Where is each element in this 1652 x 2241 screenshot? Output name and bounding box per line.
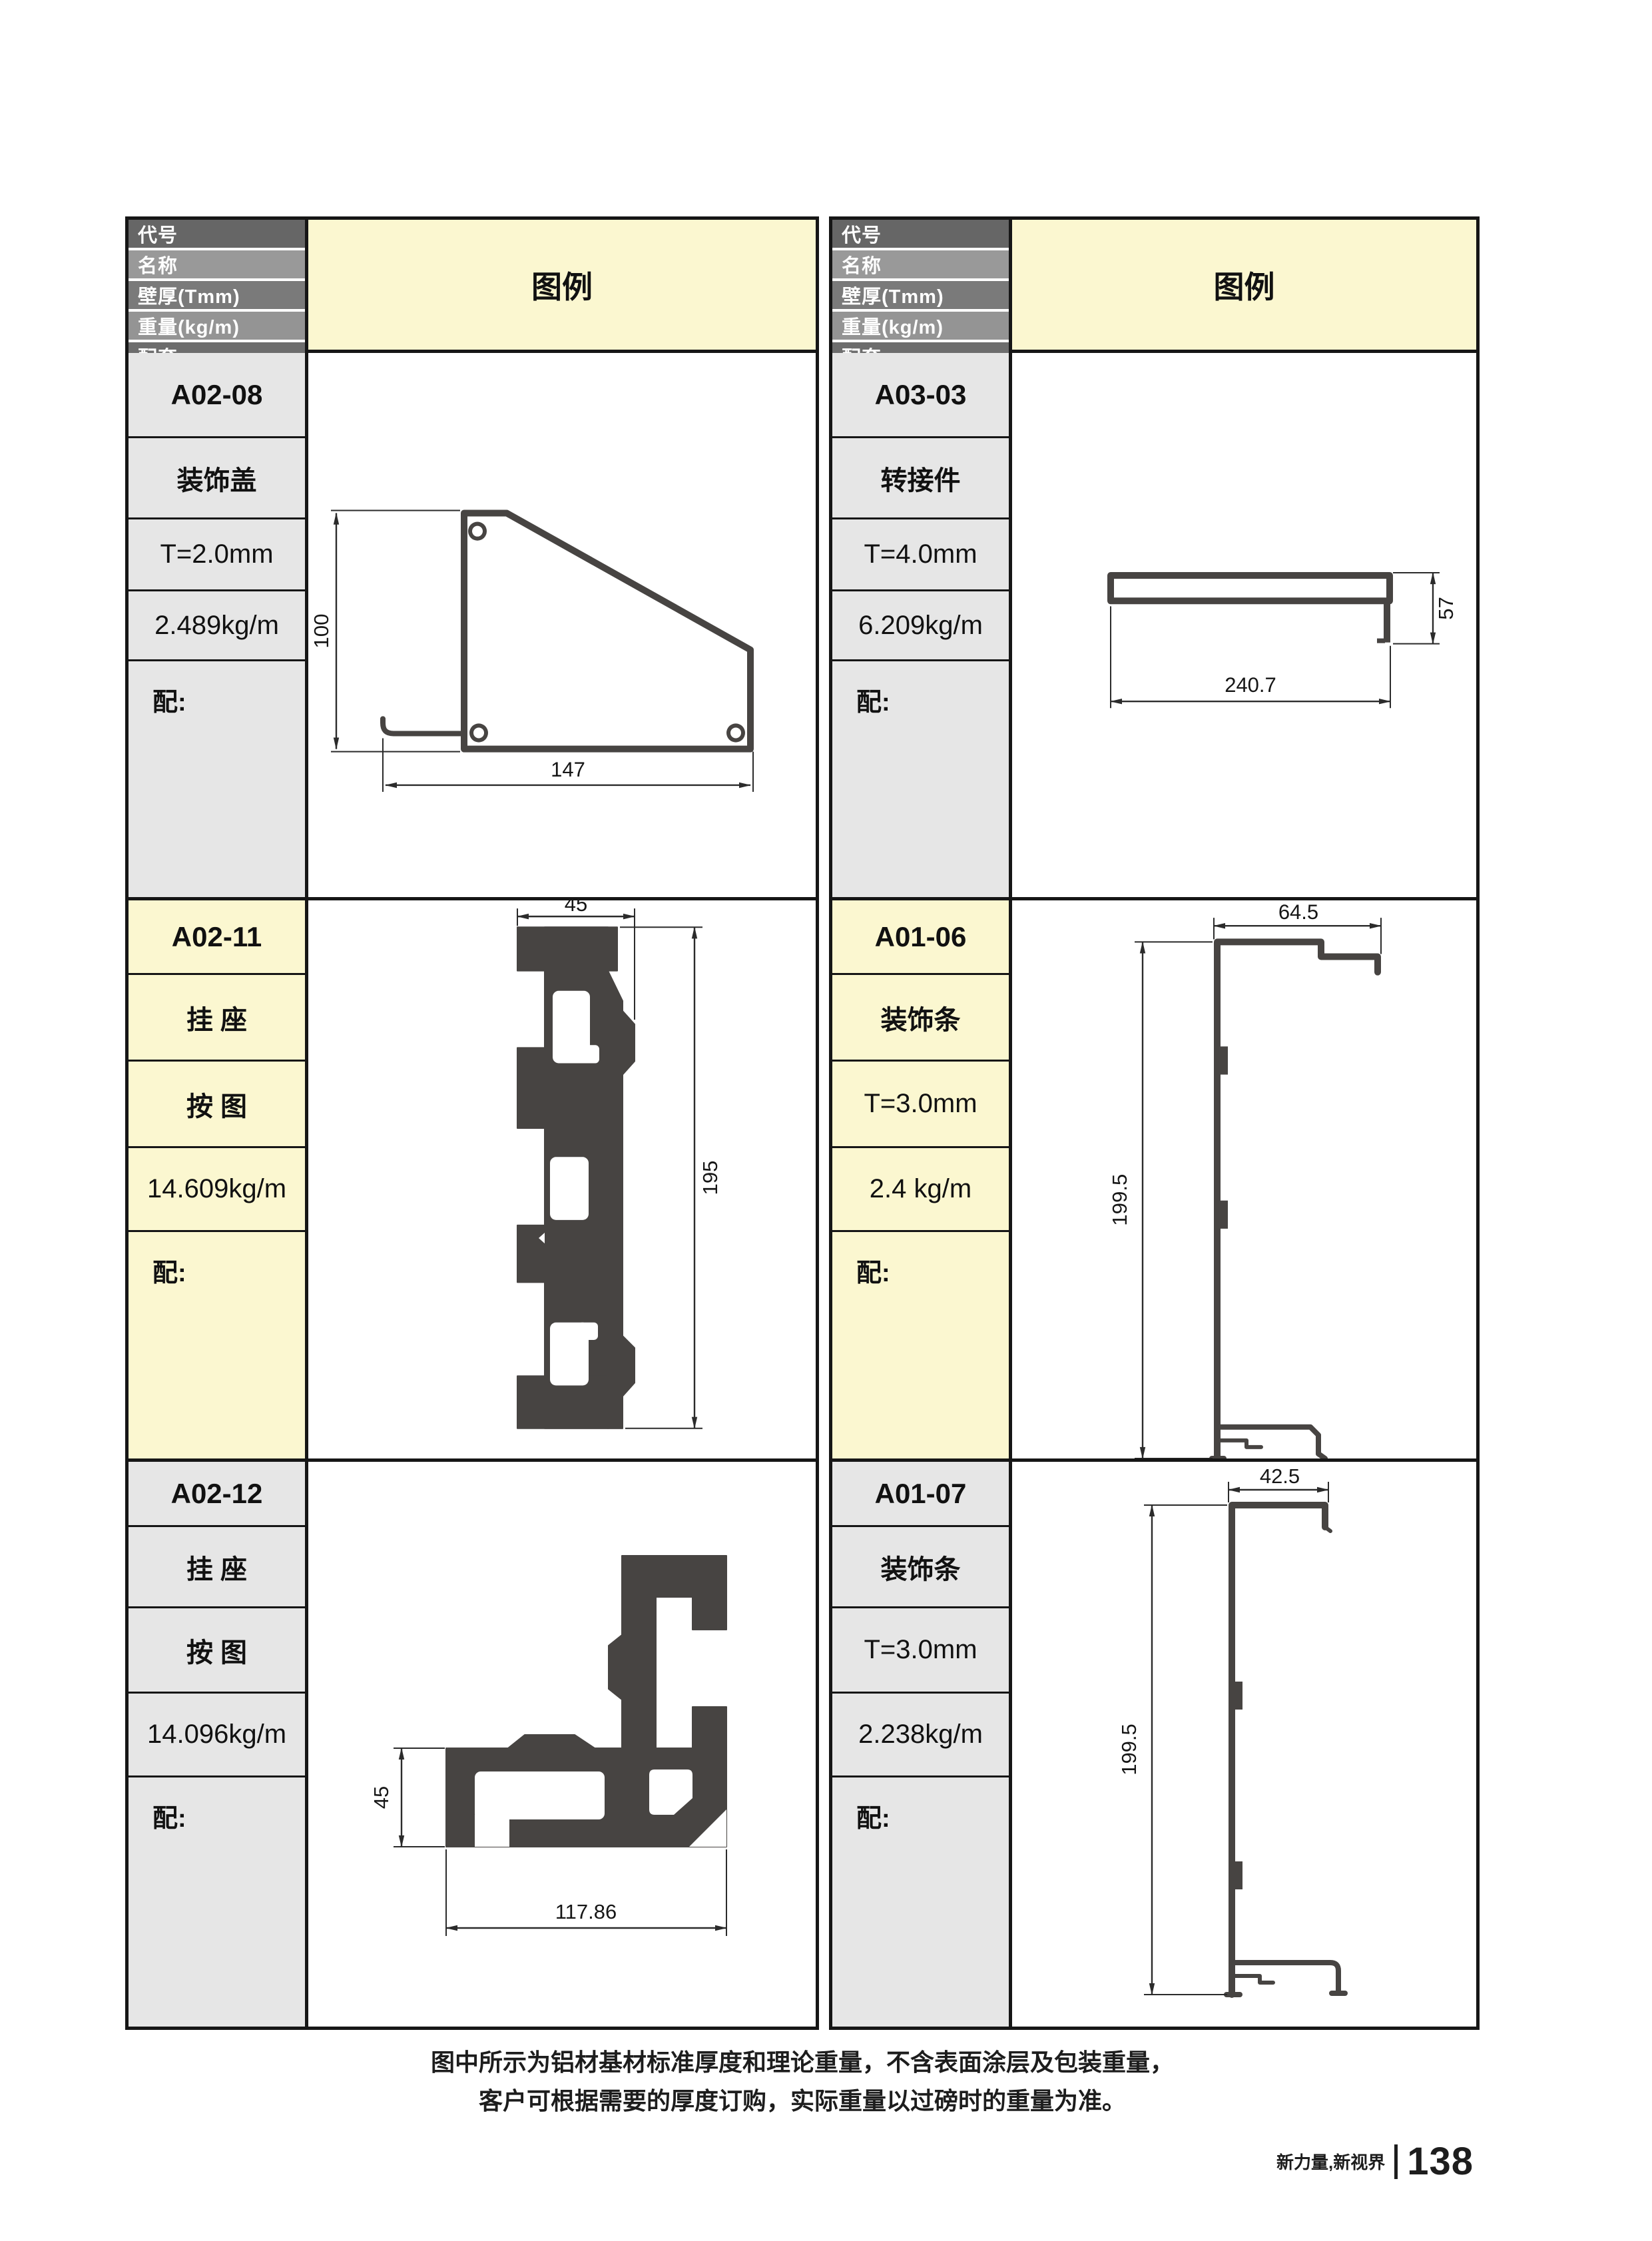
dim-height: 199.5 xyxy=(1117,1724,1141,1775)
profile-code: A02-11 xyxy=(129,900,305,975)
profile-name: 挂 座 xyxy=(129,975,305,1062)
profile-thickness: T=2.0mm xyxy=(129,519,305,591)
header-label-weight: 重量(kg/m) xyxy=(129,312,305,340)
profile-thickness: 按 图 xyxy=(129,1608,305,1694)
profile-drawing-a02-11: 45 195 xyxy=(305,900,816,1458)
profile-drawing-a01-06: 64.5 199.5 xyxy=(1009,900,1476,1458)
profile-row-a02-11: A02-11 挂 座 按 图 14.609kg/m 配: xyxy=(129,900,816,1462)
dim-height: 57 xyxy=(1434,597,1458,620)
profile-row-a01-07: A01-07 装饰条 T=3.0mm 2.238kg/m 配: xyxy=(832,1462,1476,2027)
profile-weight: 6.209kg/m xyxy=(832,591,1009,661)
table-header-right: 代号 名称 壁厚(Tmm) 重量(kg/m) 配套 图例 xyxy=(832,220,1476,353)
profile-accessory: 配: xyxy=(832,1777,1009,2027)
header-label-code: 代号 xyxy=(129,220,305,248)
profile-weight: 2.238kg/m xyxy=(832,1694,1009,1777)
catalog-table-right: 代号 名称 壁厚(Tmm) 重量(kg/m) 配套 图例 A03-03 转接件 … xyxy=(829,216,1480,2030)
profile-drawing-a02-08: 100 147 xyxy=(305,353,816,897)
screw-boss xyxy=(468,522,745,743)
profile-weight: 14.096kg/m xyxy=(129,1694,305,1777)
profile-row-a02-08: A02-08 装饰盖 T=2.0mm 2.489kg/m 配: xyxy=(129,353,816,900)
table-header-left: 代号 名称 壁厚(Tmm) 重量(kg/m) 配套 图例 xyxy=(129,220,816,353)
profile-accessory: 配: xyxy=(832,1232,1009,1458)
profile-info-a03-03: A03-03 转接件 T=4.0mm 6.209kg/m 配: xyxy=(832,353,1009,897)
profile-weight: 2.4 kg/m xyxy=(832,1148,1009,1232)
dim-width: 117.86 xyxy=(555,1900,617,1923)
footer-divider xyxy=(1394,2144,1398,2179)
page-number: 138 xyxy=(1407,2139,1474,2184)
profile-name: 装饰盖 xyxy=(129,438,305,519)
profile-accessory: 配: xyxy=(129,661,305,897)
profile-accessory: 配: xyxy=(129,1232,305,1458)
profile-drawing-a01-07: 42.5 199.5 xyxy=(1009,1462,1476,2027)
footnote: 图中所示为铝材基材标准厚度和理论重量，不含表面涂层及包装重量， 客户可根据需要的… xyxy=(125,2043,1480,2120)
page-footer: 新力量,新视界 138 xyxy=(1276,2139,1474,2184)
profile-info-a02-12: A02-12 挂 座 按 图 14.096kg/m 配: xyxy=(129,1462,305,2027)
profile-weight: 2.489kg/m xyxy=(129,591,305,661)
footnote-line1: 图中所示为铝材基材标准厚度和理论重量，不含表面涂层及包装重量， xyxy=(125,2043,1480,2082)
profile-accessory: 配: xyxy=(832,661,1009,897)
dim-width: 45 xyxy=(565,900,587,916)
profile-info-a02-11: A02-11 挂 座 按 图 14.609kg/m 配: xyxy=(129,900,305,1458)
profile-name: 装饰条 xyxy=(832,975,1009,1062)
profile-code: A02-12 xyxy=(129,1462,305,1527)
profile-row-a03-03: A03-03 转接件 T=4.0mm 6.209kg/m 配: 57 xyxy=(832,353,1476,900)
header-label-thickness: 壁厚(Tmm) xyxy=(832,281,1009,309)
profile-thickness: T=4.0mm xyxy=(832,519,1009,591)
dim-height: 195 xyxy=(698,1160,722,1195)
dim-width: 42.5 xyxy=(1260,1464,1300,1488)
header-label-thickness: 壁厚(Tmm) xyxy=(129,281,305,309)
profile-name: 挂 座 xyxy=(129,1527,305,1608)
profile-accessory: 配: xyxy=(129,1777,305,2027)
dim-height: 45 xyxy=(370,1786,393,1809)
legend-header: 图例 xyxy=(1009,220,1476,350)
dim-width: 240.7 xyxy=(1225,673,1276,697)
profile-thickness: T=3.0mm xyxy=(832,1062,1009,1148)
profile-name: 转接件 xyxy=(832,438,1009,519)
catalog-table-left: 代号 名称 壁厚(Tmm) 重量(kg/m) 配套 图例 A02-08 装饰盖 … xyxy=(125,216,819,2030)
profile-thickness: T=3.0mm xyxy=(832,1608,1009,1694)
header-label-name: 名称 xyxy=(832,250,1009,278)
dim-width: 147 xyxy=(551,758,585,781)
footnote-line2: 客户可根据需要的厚度订购，实际重量以过磅时的重量为准。 xyxy=(125,2082,1480,2120)
header-labels: 代号 名称 壁厚(Tmm) 重量(kg/m) 配套 xyxy=(832,220,1009,350)
footer-slogan: 新力量,新视界 xyxy=(1276,2149,1385,2174)
profile-code: A01-06 xyxy=(832,900,1009,975)
profile-code: A01-07 xyxy=(832,1462,1009,1527)
header-label-code: 代号 xyxy=(832,220,1009,248)
profile-weight: 14.609kg/m xyxy=(129,1148,305,1232)
profile-info-a01-07: A01-07 装饰条 T=3.0mm 2.238kg/m 配: xyxy=(832,1462,1009,2027)
profile-row-a02-12: A02-12 挂 座 按 图 14.096kg/m 配: xyxy=(129,1462,816,2027)
dim-height: 199.5 xyxy=(1108,1174,1131,1226)
dim-width: 64.5 xyxy=(1278,900,1318,924)
header-label-weight: 重量(kg/m) xyxy=(832,312,1009,340)
profile-info-a01-06: A01-06 装饰条 T=3.0mm 2.4 kg/m 配: xyxy=(832,900,1009,1458)
profile-drawing-a03-03: 57 240.7 xyxy=(1009,353,1476,897)
legend-header: 图例 xyxy=(305,220,816,350)
profile-thickness: 按 图 xyxy=(129,1062,305,1148)
profile-name: 装饰条 xyxy=(832,1527,1009,1608)
dim-height: 100 xyxy=(310,614,333,649)
profile-code: A03-03 xyxy=(832,353,1009,438)
profile-info-a02-08: A02-08 装饰盖 T=2.0mm 2.489kg/m 配: xyxy=(129,353,305,897)
profile-code: A02-08 xyxy=(129,353,305,438)
header-label-name: 名称 xyxy=(129,250,305,278)
header-labels: 代号 名称 壁厚(Tmm) 重量(kg/m) 配套 xyxy=(129,220,305,350)
profile-row-a01-06: A01-06 装饰条 T=3.0mm 2.4 kg/m 配: xyxy=(832,900,1476,1462)
profile-catalog: 代号 名称 壁厚(Tmm) 重量(kg/m) 配套 图例 A02-08 装饰盖 … xyxy=(125,216,1480,2030)
profile-drawing-a02-12: 45 117.86 xyxy=(305,1462,816,2027)
